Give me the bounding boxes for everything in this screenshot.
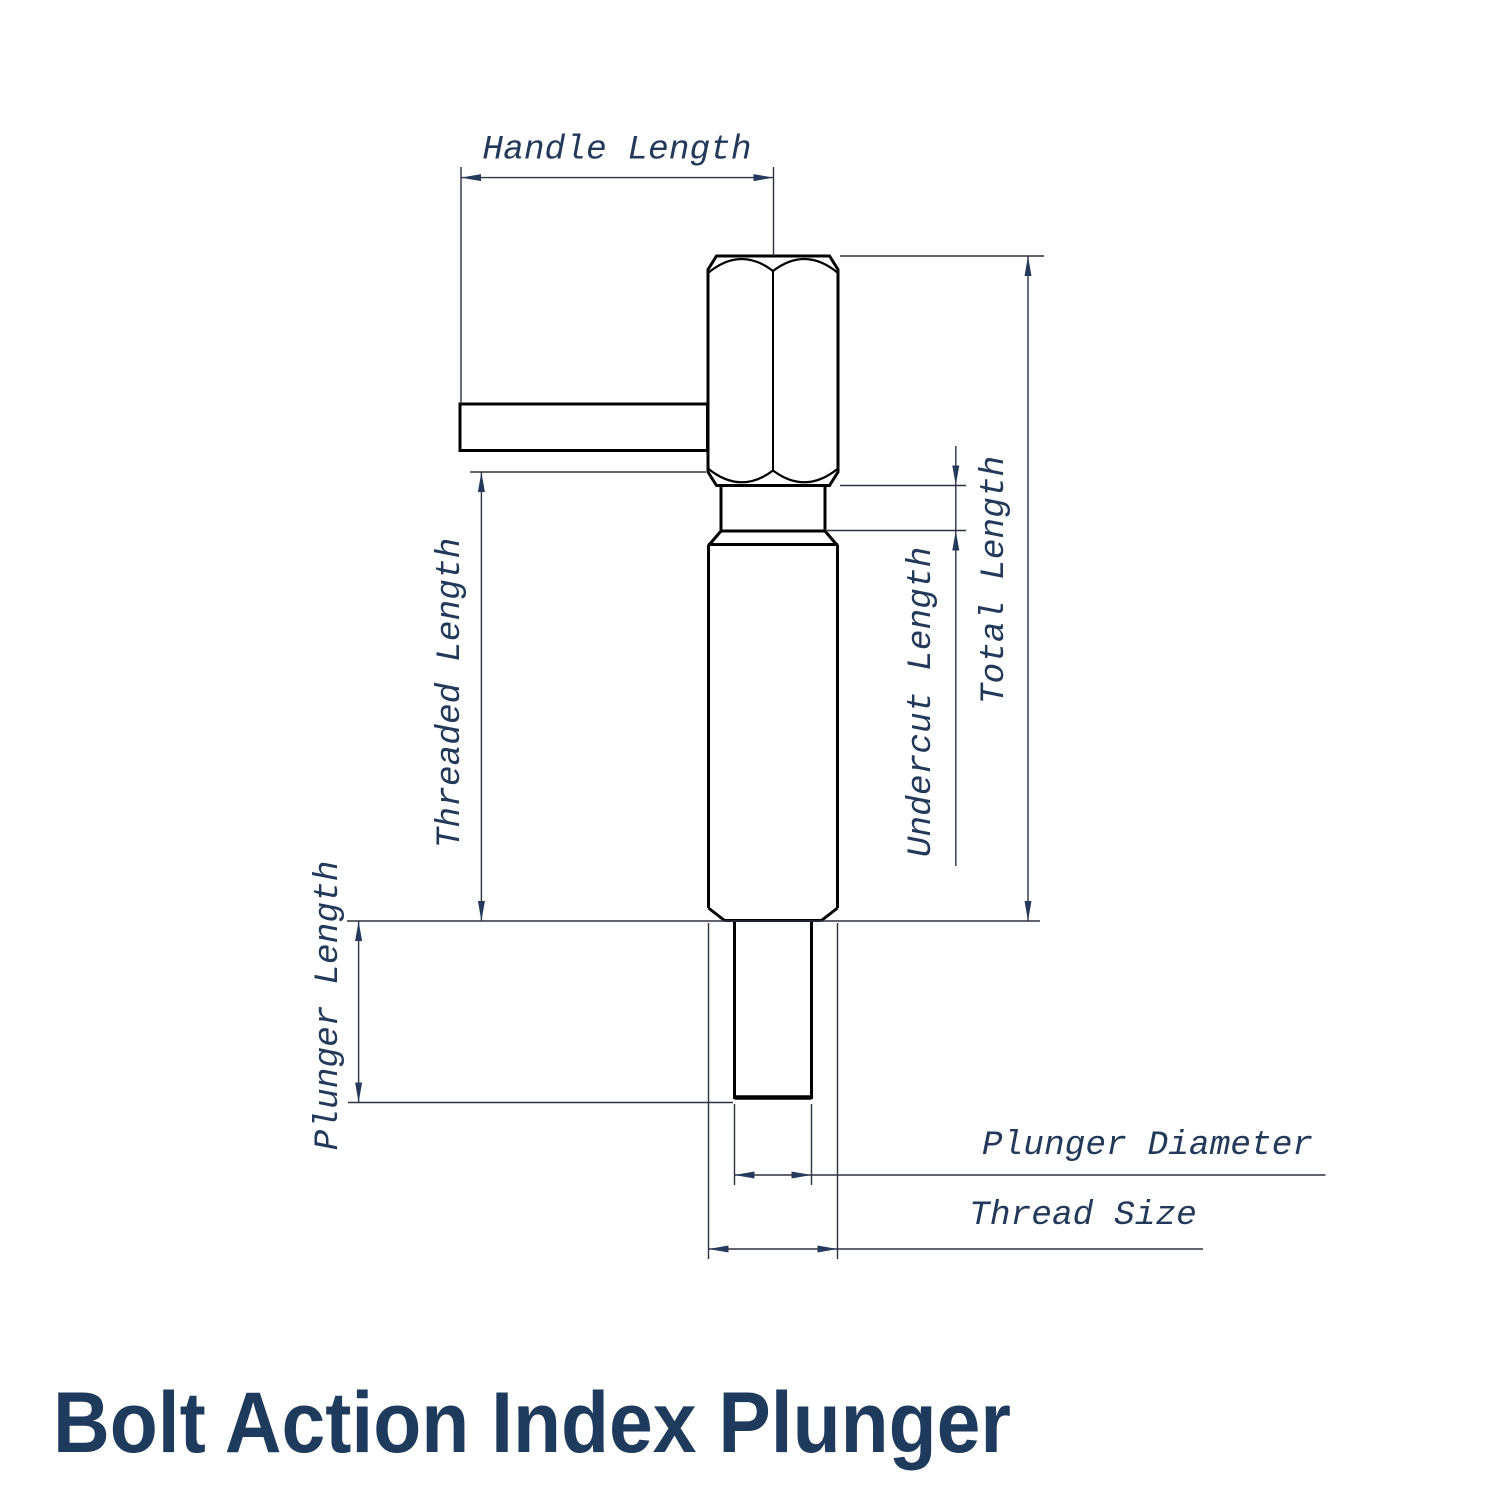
svg-text:Total Length: Total Length <box>975 456 1014 704</box>
svg-text:Thread Size: Thread Size <box>969 1196 1197 1235</box>
svg-text:Handle Length: Handle Length <box>482 131 751 170</box>
svg-text:Plunger Length: Plunger Length <box>309 861 348 1151</box>
svg-text:Bolt Action Index Plunger: Bolt Action Index Plunger <box>53 1375 1011 1471</box>
svg-text:Undercut Length: Undercut Length <box>902 547 941 858</box>
svg-text:Threaded Length: Threaded Length <box>431 538 470 849</box>
svg-text:Plunger Diameter: Plunger Diameter <box>982 1126 1313 1165</box>
